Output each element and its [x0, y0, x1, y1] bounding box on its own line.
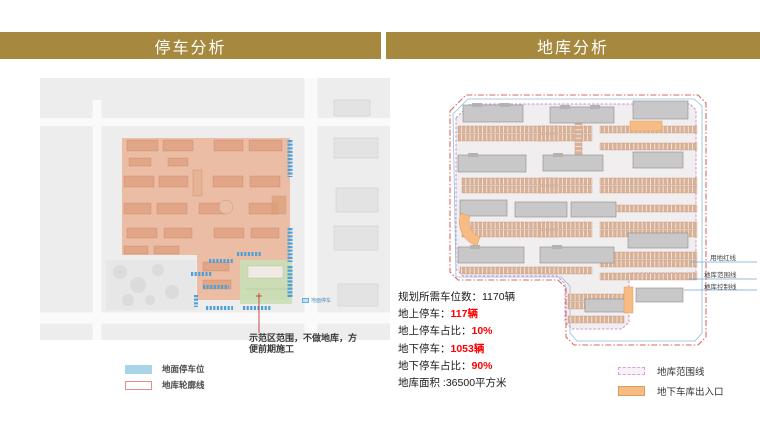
annotation-garage-control-line: 地库控制线: [704, 281, 737, 291]
left-legend: 地面停车位 地库轮廓线: [125, 363, 205, 391]
legend-item-garage-outline: 地库轮廓线: [125, 379, 205, 391]
stat-garage-area: 地库面积 :36500平方米: [398, 375, 515, 392]
slide: 停车分析 地库分析: [0, 0, 760, 425]
right-section-banner: 地库分析: [386, 32, 760, 59]
parking-site-plan: [40, 78, 390, 340]
legend-item-surface-parking: 地面停车位: [125, 363, 205, 375]
demo-area-overlay: [240, 260, 292, 304]
roadside-parking-label: 地面停车: [311, 297, 331, 304]
right-section-title: 地库分析: [537, 34, 609, 58]
legend-label: 地面停车位: [162, 363, 205, 375]
left-section-title: 停车分析: [154, 34, 226, 58]
demo-area-callout: 示范区范围，不做地库，方便前期施工: [249, 333, 361, 355]
roadside-parking-tag: 地面停车: [302, 297, 331, 304]
legend-item-garage-boundary: 地库范围线: [618, 364, 724, 378]
stat-surface-ratio: 地上停车占比：10%: [398, 323, 515, 340]
stat-underground-spaces: 地下停车：1053辆: [398, 341, 515, 358]
surface-parking-swatch: [125, 365, 152, 374]
annotation-garage-boundary-line: 地库范围线: [704, 269, 737, 279]
garage-boundary-swatch: [618, 367, 645, 375]
roadside-parking-swatch: [302, 298, 309, 303]
right-legend: 地库范围线 地下车库出入口: [618, 364, 724, 398]
stat-surface-spaces: 地上停车：117辆: [398, 306, 515, 323]
stat-underground-ratio: 地下停车占比：90%: [398, 358, 515, 375]
stat-required-spaces: 规划所需车位数：1170辆: [398, 289, 515, 306]
legend-label: 地库范围线: [657, 364, 705, 378]
central-plaza: [219, 200, 233, 214]
garage-outline-swatch: [125, 381, 152, 390]
left-section-banner: 停车分析: [0, 32, 381, 59]
garage-entrance-swatch: [618, 386, 645, 396]
annotation-land-red-line: 用地红线: [710, 252, 736, 262]
legend-label: 地库轮廓线: [162, 379, 205, 391]
park-area: [106, 260, 196, 310]
garage-stats: 规划所需车位数：1170辆 地上停车：117辆 地上停车占比：10% 地下停车：…: [398, 289, 515, 392]
legend-item-garage-entrance: 地下车库出入口: [618, 384, 724, 398]
legend-label: 地下车库出入口: [657, 384, 724, 398]
